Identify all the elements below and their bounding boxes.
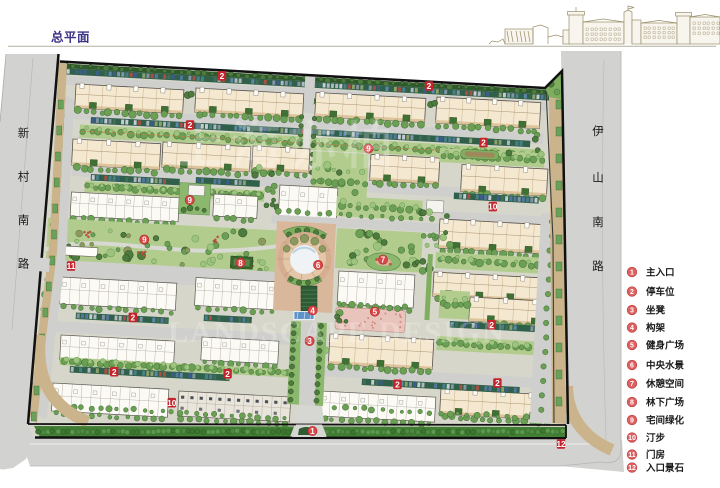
svg-text:健身广场: 健身广场 <box>646 339 685 351</box>
svg-text:坐凳: 坐凳 <box>646 304 666 316</box>
svg-text:2: 2 <box>481 138 486 148</box>
svg-text:2: 2 <box>112 367 117 377</box>
svg-text:3: 3 <box>630 308 634 315</box>
svg-text:12: 12 <box>628 465 636 472</box>
svg-text:4: 4 <box>310 306 315 315</box>
svg-text:南: 南 <box>18 213 30 227</box>
svg-text:构架: 构架 <box>646 322 666 334</box>
svg-text:9: 9 <box>187 196 192 205</box>
svg-text:门房: 门房 <box>646 449 665 461</box>
svg-text:2: 2 <box>395 379 400 389</box>
svg-text:11: 11 <box>628 452 636 459</box>
svg-text:2: 2 <box>495 378 500 388</box>
svg-text:2: 2 <box>427 81 432 91</box>
svg-text:11: 11 <box>67 261 76 271</box>
svg-text:宅间绿化: 宅间绿化 <box>646 414 685 426</box>
svg-text:主入口: 主入口 <box>646 266 675 278</box>
svg-text:路: 路 <box>592 259 604 273</box>
svg-text:2: 2 <box>630 289 634 296</box>
svg-text:中央水景: 中央水景 <box>646 359 685 371</box>
svg-text:南: 南 <box>592 215 604 229</box>
svg-text:6: 6 <box>316 261 321 270</box>
svg-text:6: 6 <box>630 363 634 370</box>
svg-text:10: 10 <box>628 435 636 442</box>
svg-text:停车位: 停车位 <box>646 286 675 298</box>
svg-text:林下广场: 林下广场 <box>646 396 685 408</box>
svg-text:路: 路 <box>18 257 30 271</box>
svg-text:9: 9 <box>630 418 634 425</box>
svg-text:7: 7 <box>630 381 634 388</box>
svg-text:9: 9 <box>142 236 147 245</box>
svg-text:4: 4 <box>630 325 634 332</box>
svg-text:上海亦柏: 上海亦柏 <box>175 118 399 174</box>
svg-text:8: 8 <box>630 400 634 407</box>
svg-text:休憩空间: 休憩空间 <box>645 378 684 390</box>
svg-text:2: 2 <box>225 369 230 379</box>
svg-text:伊: 伊 <box>592 125 604 138</box>
svg-text:2: 2 <box>220 71 225 81</box>
svg-text:村: 村 <box>18 170 30 184</box>
svg-text:新: 新 <box>18 126 30 140</box>
svg-text:10: 10 <box>488 202 498 212</box>
svg-text:总平面: 总平面 <box>51 30 90 45</box>
svg-text:LANDSCAPE DESIGN: LANDSCAPE DESIGN <box>168 316 506 349</box>
svg-text:12: 12 <box>556 439 566 449</box>
svg-text:2: 2 <box>130 313 135 323</box>
svg-text:1: 1 <box>310 427 315 436</box>
svg-text:8: 8 <box>238 259 243 268</box>
svg-text:汀步: 汀步 <box>646 432 666 444</box>
svg-text:入口景石: 入口景石 <box>645 463 685 474</box>
svg-text:山: 山 <box>592 172 604 185</box>
svg-text:7: 7 <box>381 256 386 265</box>
svg-text:10: 10 <box>167 398 177 408</box>
svg-text:5: 5 <box>630 343 634 350</box>
svg-text:1: 1 <box>630 270 634 277</box>
